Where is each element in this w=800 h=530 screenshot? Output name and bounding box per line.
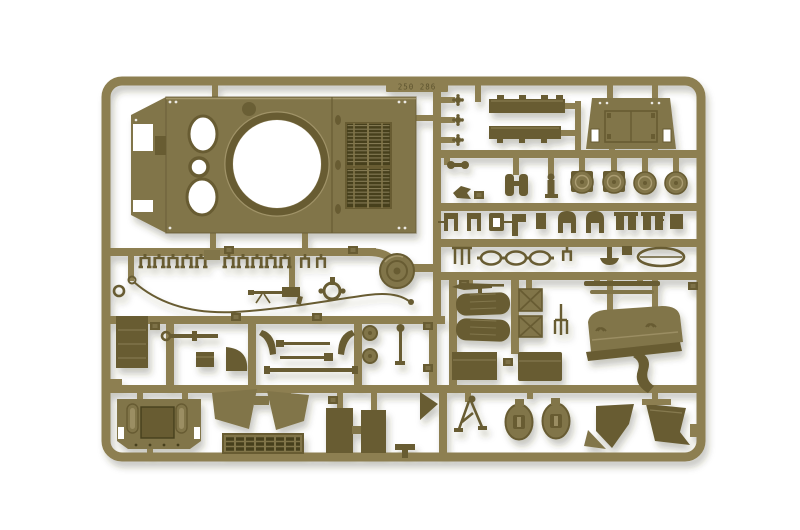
- intake-grille: [223, 434, 303, 453]
- hatch-tab: [515, 399, 524, 406]
- round-caps: [571, 171, 687, 194]
- trident: [452, 248, 472, 265]
- crew-hatch-opening: [189, 116, 217, 152]
- tripod: [454, 396, 487, 433]
- mud-flap: [646, 404, 690, 445]
- embossed-tab: [107, 379, 122, 389]
- oval-hatch-cover: [543, 404, 570, 439]
- mud-flap: [584, 404, 634, 449]
- chain-links-row: [452, 246, 684, 266]
- hatch-tab: [551, 398, 560, 405]
- filler-cap-dome: [242, 102, 256, 116]
- stowage-box: [116, 316, 148, 368]
- right-rail-tab: [690, 424, 700, 437]
- axe-blade: [338, 330, 355, 355]
- grille-hinge: [335, 160, 341, 170]
- mold-stamp-tab: 250 286: [386, 80, 448, 92]
- ball-pin: [395, 324, 405, 365]
- panel-connector: [352, 426, 361, 434]
- pulley-discs: [363, 326, 377, 363]
- stowage-bin: [452, 352, 497, 380]
- part-number-tag: [474, 191, 484, 199]
- latch-part: [453, 186, 471, 199]
- small-crate: [196, 352, 214, 367]
- crew-hatch-opening: [187, 179, 217, 215]
- engine-deck-grille: [346, 123, 391, 166]
- bedroll: [456, 318, 511, 342]
- fender-strip: [489, 95, 565, 113]
- hull-front-plate: [131, 97, 166, 233]
- side-panel: [361, 410, 386, 453]
- strapped-crate: [519, 316, 542, 337]
- stowage-bin: [518, 352, 562, 381]
- oval-grab-rail: [638, 248, 684, 266]
- grille-hinge: [335, 204, 341, 214]
- hull-front-opening: [133, 124, 153, 151]
- flat-strips: [584, 281, 660, 294]
- rear-hull-plate: [117, 399, 201, 449]
- wedge: [420, 392, 438, 420]
- engine-deck-grille: [346, 168, 391, 208]
- mudguard: [267, 391, 309, 430]
- bracket-row: [438, 211, 683, 236]
- grille-hinge: [335, 115, 341, 125]
- upper-hull-panel: [131, 97, 416, 233]
- tow-cable: [129, 277, 415, 313]
- machine-gun: [248, 287, 303, 305]
- mudguard-connector: [254, 396, 269, 405]
- rifle: [452, 283, 504, 293]
- binoculars: [505, 174, 528, 196]
- mushroom-pin: [600, 247, 619, 265]
- dumbbell-part: [447, 161, 469, 169]
- mudguard: [212, 389, 257, 429]
- periscope-opening: [190, 158, 208, 176]
- mold-stamp-text: 250 286: [398, 83, 437, 92]
- turret-ring-opening: [225, 112, 329, 216]
- ring-sight: [318, 277, 345, 299]
- pitchfork: [555, 304, 567, 335]
- figure-part: [545, 174, 558, 199]
- fender-strip: [489, 126, 561, 143]
- small-block: [622, 246, 632, 255]
- rail-block: [204, 250, 220, 260]
- rail-ring: [114, 286, 124, 296]
- sprue-photo: 250 286: [0, 0, 800, 530]
- exhaust-deflector: [586, 306, 683, 361]
- axe-blade: [259, 330, 276, 355]
- bedroll: [456, 292, 511, 316]
- side-panel: [326, 408, 353, 453]
- oval-hatch-cover: [506, 405, 533, 440]
- photo-canvas: 250 286: [0, 0, 800, 530]
- rear-door-panel: [586, 98, 676, 149]
- quarter-fan: [226, 347, 247, 371]
- idler-wheel: [380, 254, 414, 288]
- strapped-crate: [519, 289, 542, 311]
